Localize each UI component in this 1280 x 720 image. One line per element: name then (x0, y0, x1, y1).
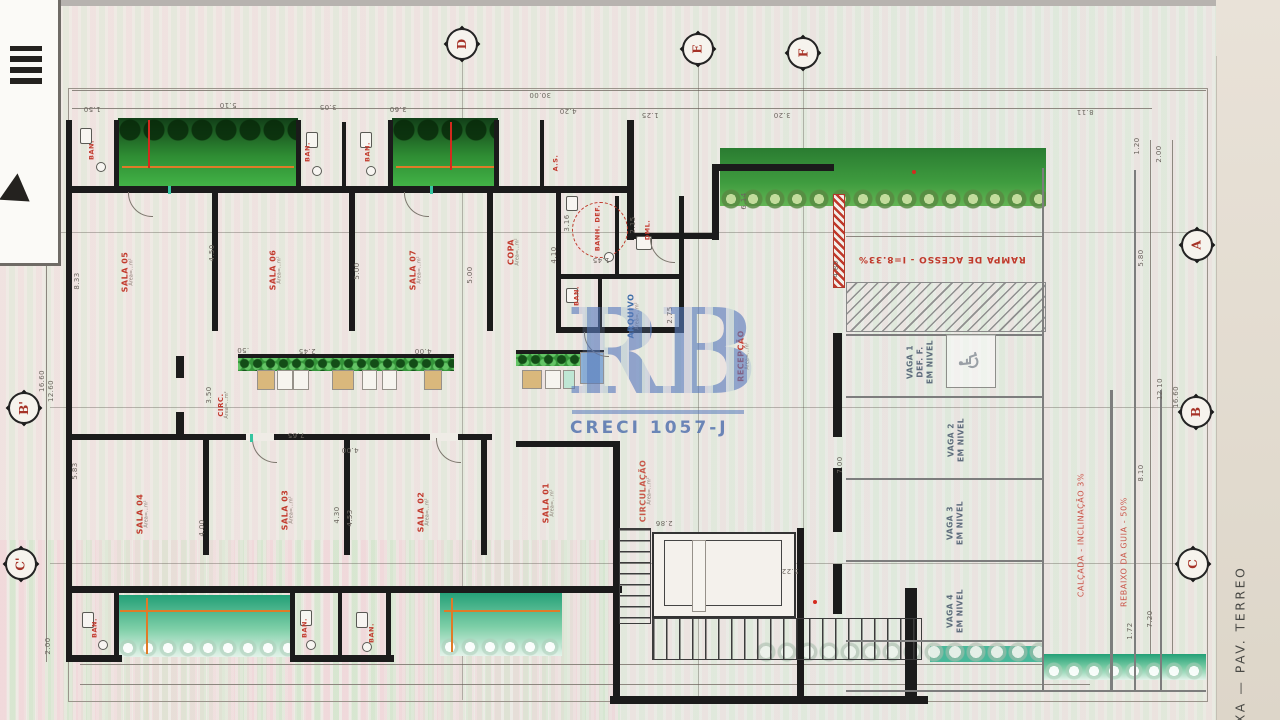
wall (66, 434, 492, 440)
wall (344, 440, 350, 555)
red-tick (148, 120, 150, 168)
wall (349, 191, 355, 331)
wall (679, 196, 684, 333)
wall (833, 333, 842, 437)
room-area: Área=...m² (636, 294, 642, 339)
wall (712, 164, 834, 171)
marker-circle: B' (8, 392, 40, 424)
room-area: Área=...m² (225, 391, 231, 418)
marker-letter: D (455, 39, 469, 49)
wall (114, 588, 119, 660)
grid-marker-d: D (444, 26, 480, 62)
room-name: BAN. (90, 618, 98, 638)
dimension-label: 2.00 (44, 637, 52, 654)
door-jamb-mark (250, 434, 253, 442)
room-label-dml: DML. (644, 220, 651, 240)
wall (610, 696, 928, 704)
dimension-label: 5.00 (466, 266, 474, 283)
wall (487, 191, 493, 331)
door-jamb-mark (168, 186, 171, 194)
sink-fixture (98, 640, 108, 650)
furniture (257, 370, 275, 390)
wall (712, 164, 719, 240)
photo-top-edge (0, 0, 1280, 6)
setback-line (451, 598, 453, 652)
furniture (362, 370, 377, 390)
parking-line (846, 478, 1044, 480)
sheet-margin (1216, 0, 1280, 720)
wall (290, 588, 295, 660)
parking-line (846, 560, 1044, 562)
sink-fixture (362, 642, 372, 652)
toilet-fixture (356, 612, 368, 628)
room-label-sala07: SALA 07Área=...m² (409, 250, 424, 291)
room-label-ban-bl: BAN. (91, 618, 98, 638)
parking-line (846, 396, 1044, 398)
dimension-label: 7.00 (836, 456, 844, 473)
sidewalk-line (1042, 168, 1044, 692)
wall (494, 120, 499, 190)
room-label-circ: CIRC.Área=...m² (217, 391, 231, 418)
furniture (332, 370, 354, 390)
room-name: BAN. (367, 623, 375, 643)
dimension-label: 3.60 (389, 105, 406, 113)
floorplan-photo: ♿ SALA 05Área=...m² SALA 06Área=...m² SA… (0, 0, 1280, 720)
room-name: BAN. (300, 618, 308, 638)
room-name: BAN. (363, 142, 371, 162)
dimension-label: 5.80 (1137, 249, 1145, 266)
curb-line (1160, 390, 1162, 692)
wall (556, 327, 684, 333)
dimension-label: 7.65 (287, 431, 304, 439)
wall (114, 120, 119, 190)
wall (386, 588, 391, 660)
elevator-car (664, 540, 782, 606)
room-area: Área=...m² (746, 330, 752, 382)
room-label-ban-t2: BAN. (364, 142, 371, 162)
parking-line (846, 334, 1044, 336)
red-dot (912, 170, 916, 174)
parking-line (846, 640, 1044, 642)
setback-line (444, 610, 560, 612)
corner-panel (0, 0, 61, 266)
dimension-label: 4.53 (346, 509, 354, 526)
red-tick (450, 122, 452, 170)
room-label-ban-t1: BAN. (304, 142, 311, 162)
dimension-label: 1.72 (1126, 622, 1134, 639)
wall (66, 586, 622, 593)
wall (833, 564, 842, 614)
dimension-label: 4.50 (208, 244, 216, 261)
marker-circle: D (446, 28, 478, 60)
furniture (563, 370, 575, 389)
dimension-label: 6.14 (740, 192, 748, 209)
panel-glyph-2 (0, 173, 39, 214)
room-area: Área=...m² (290, 490, 296, 531)
marker-circle: B (1180, 396, 1212, 428)
room-label-ban: BAN. (573, 286, 580, 306)
room-name: BAN. (303, 142, 311, 162)
dimension-label: 5.22 (781, 567, 798, 575)
dimension-label: 2.45 (298, 347, 315, 355)
furniture (277, 370, 293, 390)
marker-circle: F (787, 37, 819, 69)
furniture (522, 370, 542, 389)
marker-letter: E (691, 44, 705, 53)
dimension-label: 3.50 (205, 386, 213, 403)
sheet-title: AIXA — PAV. TERREO (1233, 471, 1248, 720)
marker-circle: E (682, 33, 714, 65)
dimension-label: 2.86 (655, 519, 672, 527)
room-label-ban-tl: BAN. (88, 140, 95, 160)
wall (516, 441, 620, 447)
wall (342, 122, 346, 188)
marker-circle: A (1181, 229, 1213, 261)
dimension-label: 12.60 (47, 380, 55, 402)
wall (176, 356, 184, 378)
garden-strip (720, 148, 1046, 206)
room-label-arquivo: ARQUIVOÁrea=...m² (627, 294, 642, 339)
room-area: Área=...m² (648, 460, 654, 523)
dimension-label: 4.00 (414, 347, 431, 355)
room-label-copa: COPAÁrea=...m² (507, 238, 522, 265)
dim-chain-line (1150, 140, 1151, 664)
dimension-label: 5.83 (71, 462, 79, 479)
wall (338, 590, 342, 660)
marker-letter: F (796, 49, 810, 58)
parking-label-vaga2: VAGA 2 EM NIVEL (946, 418, 966, 462)
dim-chain-line (80, 664, 1080, 665)
panel-glyph-1 (10, 46, 42, 84)
grid-marker-c-left: C' (3, 546, 39, 582)
room-name: DML. (643, 220, 651, 240)
furniture (545, 370, 561, 389)
setback-line (146, 598, 148, 654)
room-name: BAN. (87, 140, 95, 160)
wall (176, 412, 184, 434)
wheelchair-icon: ♿ (955, 348, 986, 372)
room-area: Área=...m² (426, 492, 432, 533)
dimension-label: 1.20 (1133, 137, 1141, 154)
parking-label-vaga4: VAGA 4 EM NIVEL (945, 589, 965, 633)
dimension-label: 4.00 (198, 519, 206, 536)
room-area: Área=...m² (551, 483, 557, 524)
marker-letter: C' (14, 557, 28, 570)
grid-marker-f: F (785, 35, 821, 71)
dimension-label: 30.00 (529, 91, 551, 99)
grid-marker-a-right: A (1179, 227, 1215, 263)
sidewalk-annotation: CALÇADA - INCLINAÇÃO 3% (1077, 473, 1086, 597)
dimension-label: 4.20 (559, 107, 576, 115)
room-name: A.S. (551, 155, 559, 172)
dimension-label: 8.33 (73, 272, 81, 289)
room-label-ban-b2: BAN. (368, 623, 375, 643)
marker-letter: C (1186, 559, 1200, 569)
setback-line (396, 166, 494, 168)
wall (540, 120, 544, 190)
dimension-label: 5.00 (353, 262, 361, 279)
dimension-label: 12.10 (1156, 378, 1164, 400)
wall (203, 440, 209, 555)
room-label-circulacao: CIRCULAÇÃOÁrea=...m² (639, 460, 654, 523)
room-area: Área=...m² (130, 252, 136, 293)
dimension-label: 8.10 (1137, 464, 1145, 481)
dimension-label: 7.20 (1146, 610, 1154, 627)
wall (481, 440, 487, 555)
marker-circle: C' (5, 548, 37, 580)
wall (797, 528, 804, 700)
wall (598, 274, 602, 332)
room-label-sala02: SALA 02Área=...m² (417, 492, 432, 533)
wall (290, 655, 394, 662)
sink-fixture (366, 166, 376, 176)
grid-marker-b-left: B' (6, 390, 42, 426)
furniture (580, 352, 604, 384)
grid-marker-b-right: B (1178, 394, 1214, 430)
line (846, 236, 1044, 237)
dimension-label: 1.25 (641, 111, 658, 119)
sink-fixture (306, 640, 316, 650)
room-area: Área=...m² (516, 238, 522, 265)
stair-flight (652, 618, 922, 660)
wall (296, 120, 301, 190)
parking-label-vaga3: VAGA 3 EM NIVEL (945, 501, 965, 545)
grid-marker-c-right: C (1175, 546, 1211, 582)
sidewalk-line (1110, 390, 1113, 692)
room-label-banh-def: BANH. DEF. (594, 205, 601, 251)
dimension-label: 3.05 (319, 103, 336, 111)
marker-circle: C (1177, 548, 1209, 580)
garden-strip (392, 118, 498, 186)
furniture (382, 370, 397, 390)
furniture (424, 370, 442, 390)
dim-chain-line (72, 90, 1206, 91)
ramp-annotation: RAMPA DE ACESSO - I=8.33% (858, 254, 1026, 264)
dimension-label: 2.75 (666, 306, 674, 323)
garden-strip (440, 592, 562, 656)
dimension-label: 4.10 (550, 246, 558, 263)
room-label-sala03: SALA 03Área=...m² (281, 490, 296, 531)
dimension-label: 4.30 (333, 506, 341, 523)
room-label-as: A.S. (552, 155, 559, 172)
sink-fixture (96, 162, 106, 172)
room-area: Área=...m² (145, 494, 151, 535)
room-label-sala05: SALA 05Área=...m² (121, 252, 136, 293)
dimension-label: 4.80 (832, 260, 840, 277)
dimension-label: 1.50 (83, 105, 100, 113)
curb-annotation: REBAIXO DA GUIA - 50% (1120, 497, 1129, 607)
room-label-sala04: SALA 04Área=...m² (136, 494, 151, 535)
dimension-label: 3.20 (773, 111, 790, 119)
sink-fixture (312, 166, 322, 176)
grid-marker-e: E (680, 31, 716, 67)
stair-flight (619, 528, 651, 624)
dimension-label: 3.16 (563, 214, 571, 231)
sidewalk-line (1134, 170, 1136, 692)
dimension-label: 2.00 (1155, 145, 1163, 162)
dimension-label: 5.10 (219, 101, 236, 109)
parking-label-vaga1: VAGA 1 DEF. F. EM NIVEL (905, 340, 934, 384)
dimension-label: 4.00 (341, 446, 358, 454)
room-area: Área=...m² (418, 250, 424, 291)
garden-strip (118, 118, 298, 186)
wall (66, 120, 72, 662)
marker-letter: A (1190, 240, 1204, 249)
wall (556, 274, 684, 279)
furniture (293, 370, 309, 390)
wall (833, 468, 842, 532)
red-dot (813, 600, 817, 604)
door-jamb-mark (430, 186, 433, 194)
room-area: Área=...m² (278, 250, 284, 291)
room-label-recepcao: RECEPÇÃOÁrea=...m² (737, 330, 752, 382)
room-label-ban-b1: BAN. (301, 618, 308, 638)
dimension-label: .50 (237, 346, 249, 354)
reception-counter (692, 540, 706, 612)
sheet-edge-line (1216, 56, 1217, 720)
access-ramp-hatch (846, 282, 1046, 332)
room-name: BANH. DEF. (593, 205, 601, 251)
toilet-fixture (566, 196, 578, 211)
garden-strip (1044, 654, 1206, 680)
wall (388, 120, 393, 190)
room-label-sala01: SALA 01Área=...m² (542, 483, 557, 524)
dimension-label: 2.15 (629, 216, 637, 233)
marker-letter: B (1189, 407, 1203, 417)
marker-letter: B' (17, 401, 31, 415)
dim-chain-line (80, 684, 1090, 685)
room-name: BAN. (572, 286, 580, 306)
dimension-label: 16.60 (38, 370, 46, 392)
room-label-sala06: SALA 06Área=...m² (269, 250, 284, 291)
sidewalk-line (846, 690, 1206, 692)
dimension-label: 8.11 (1076, 108, 1093, 116)
dimension-label: 1.45 (592, 256, 609, 264)
garden-strip (118, 595, 292, 657)
